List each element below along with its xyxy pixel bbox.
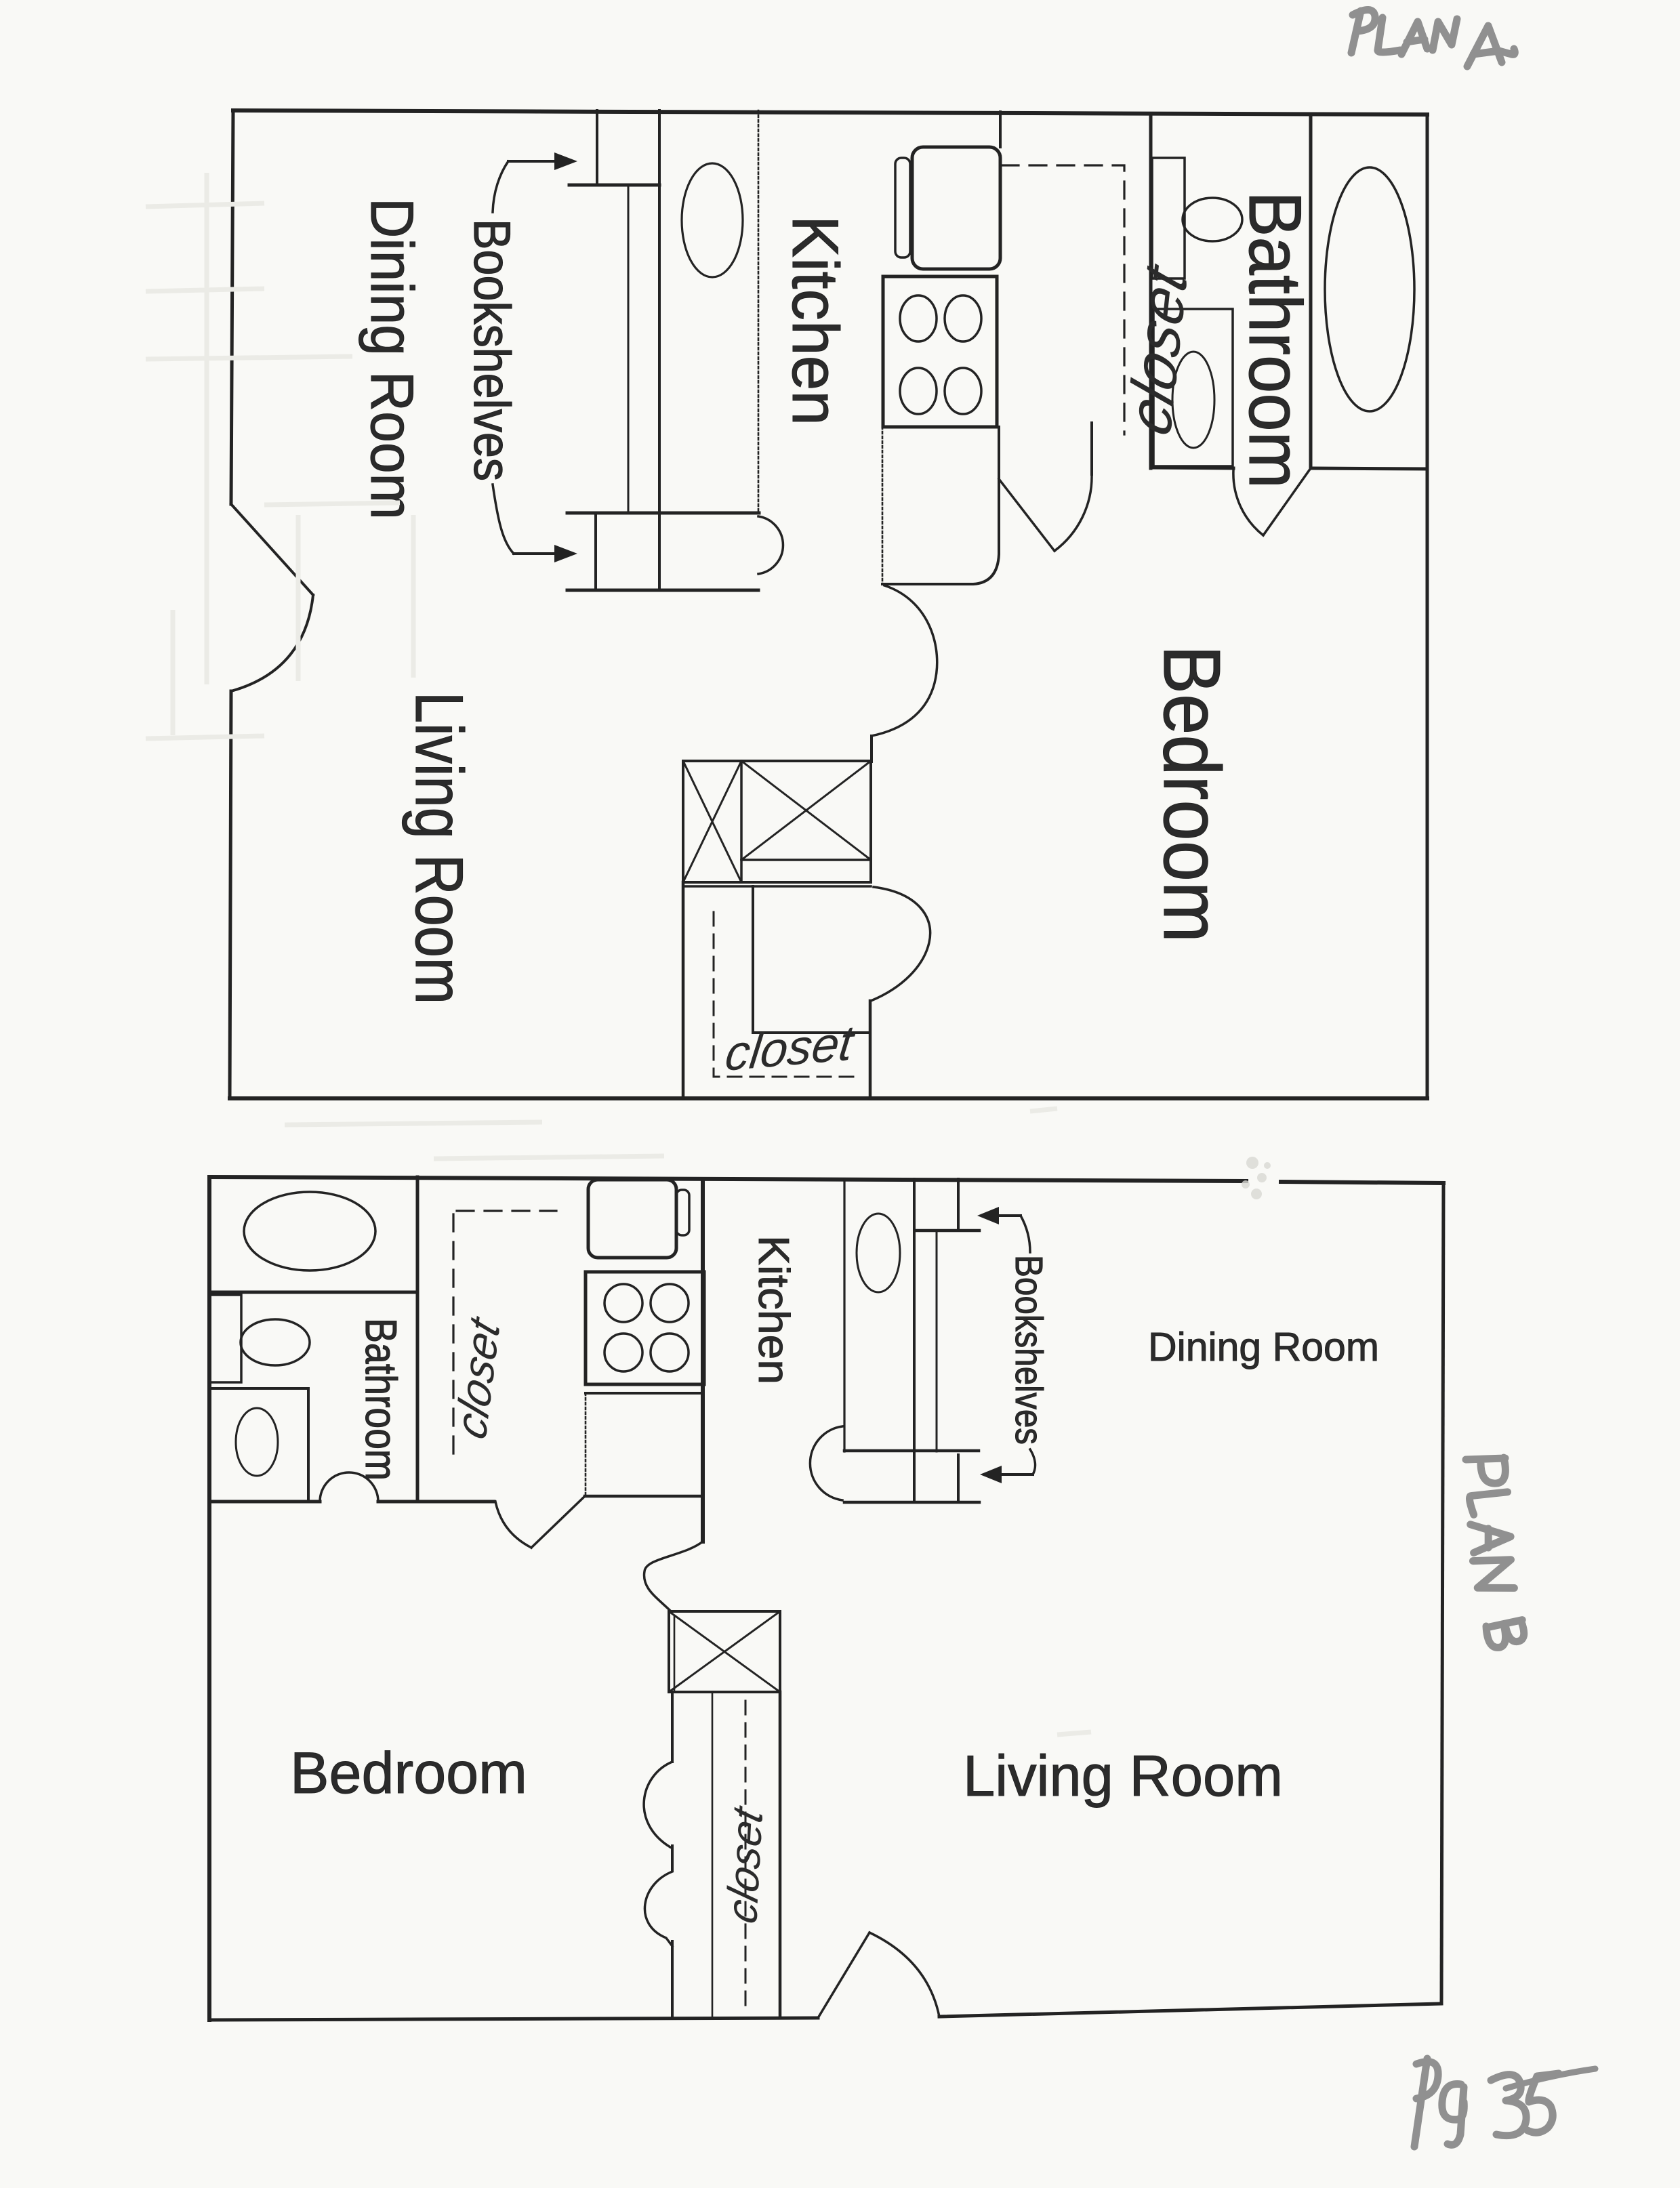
svg-text:Dining Room: Dining Room (358, 198, 426, 520)
svg-text:Bookshelves: Bookshelves (464, 219, 521, 481)
svg-text:Kitchen: Kitchen (750, 1235, 798, 1384)
svg-text:Dining Room: Dining Room (1148, 1325, 1379, 1369)
svg-text:closet: closet (717, 1800, 771, 1928)
svg-text:Kitchen: Kitchen (779, 215, 853, 426)
svg-text:Bathroom: Bathroom (1233, 191, 1316, 489)
svg-text:Living Room: Living Room (963, 1744, 1283, 1809)
svg-text:Living Room: Living Room (401, 692, 476, 1004)
svg-text:Bookshelves: Bookshelves (1007, 1255, 1049, 1445)
svg-text:Bedroom: Bedroom (1147, 645, 1237, 943)
svg-text:Bedroom: Bedroom (290, 1741, 527, 1806)
svg-text:Bathroom: Bathroom (356, 1318, 405, 1481)
